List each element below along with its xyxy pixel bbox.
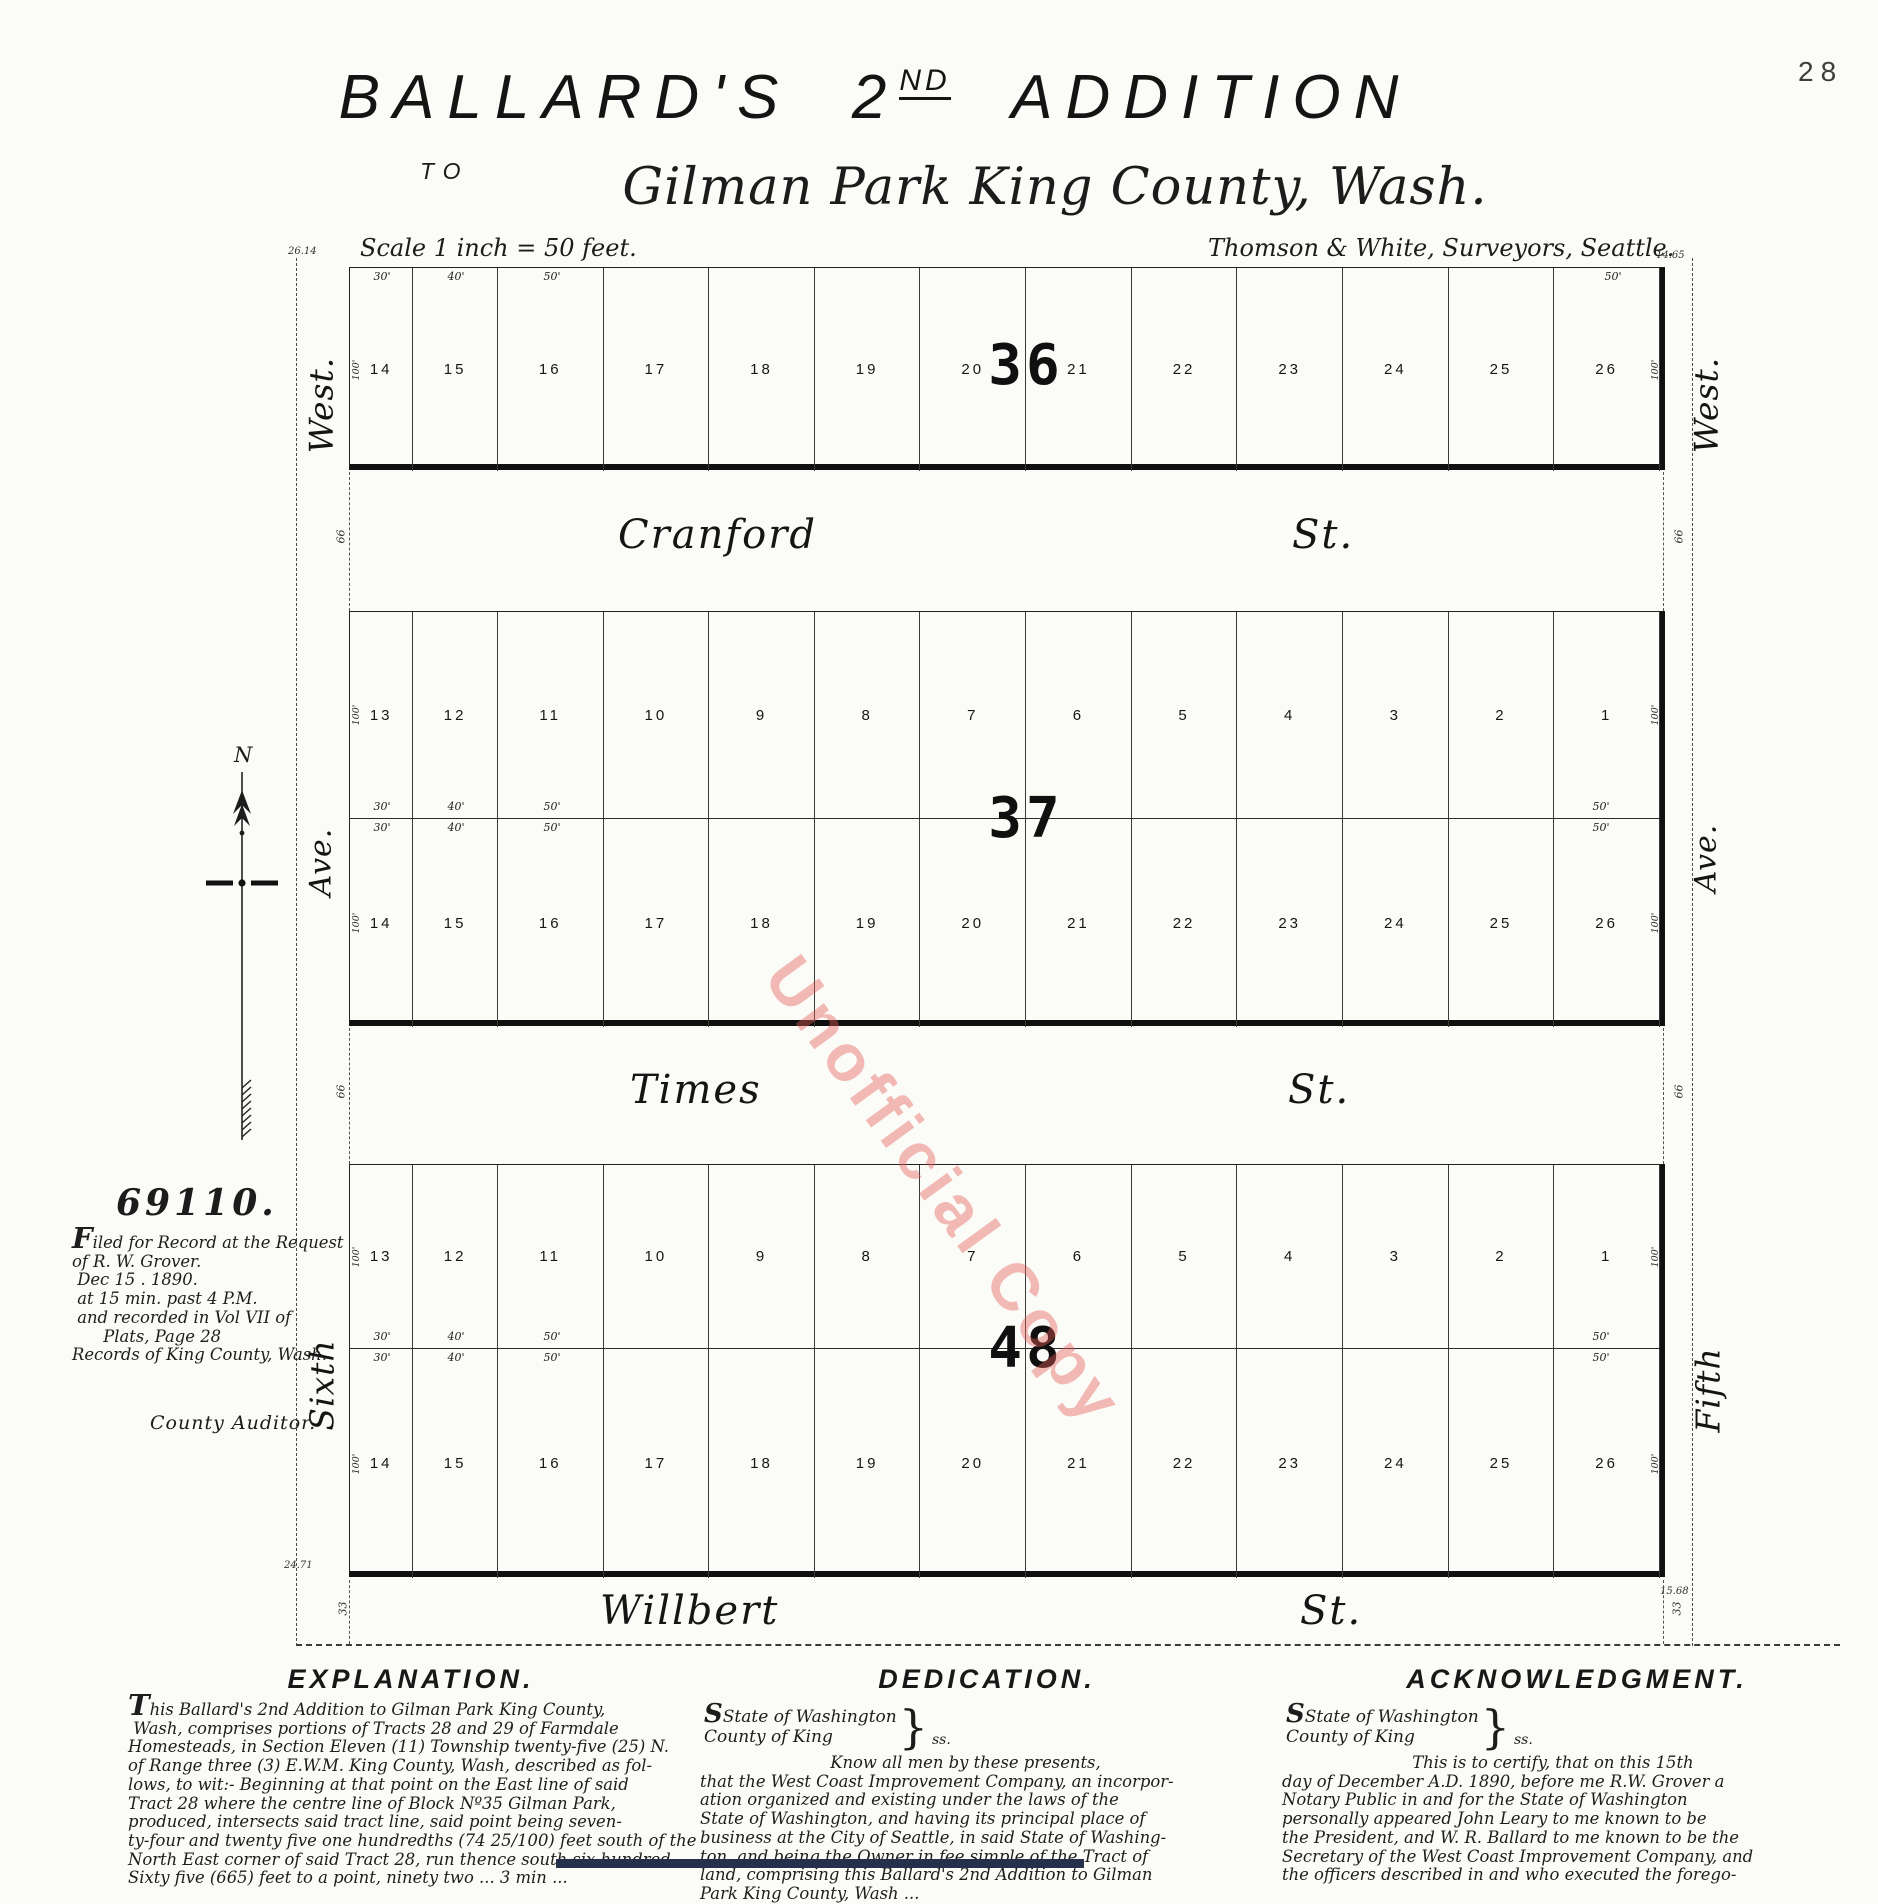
lot-depth-dim: 100': [1650, 705, 1661, 726]
times-width-right: 66: [1673, 1085, 1686, 1099]
lot-number: 11: [539, 1248, 561, 1265]
lot-number: 14: [370, 915, 393, 932]
lot-width-dim: 50': [1592, 1330, 1609, 1343]
lot-number: 10: [645, 707, 668, 724]
text-line: of R. W. Grover.: [72, 1253, 332, 1272]
lot-number: 18: [750, 1455, 773, 1472]
corner-dim-top-left: 26.14: [288, 246, 317, 257]
lot-36-18: 18: [709, 268, 815, 471]
drop-cap: T: [128, 1688, 150, 1722]
lot-number: 1: [1601, 1248, 1612, 1265]
lot-48-3: 3: [1343, 1165, 1449, 1348]
text-line: Plats, Page 28: [72, 1328, 332, 1347]
lot-number: 5: [1178, 1248, 1189, 1265]
cranford-width-right: 66: [1673, 530, 1686, 544]
lot-number: 15: [444, 915, 467, 932]
county-auditor-signature: County Auditor.: [150, 1412, 316, 1434]
cranford-street-edge-left: [349, 472, 350, 611]
lot-number: 22: [1173, 915, 1196, 932]
lot-number: 25: [1490, 915, 1513, 932]
lot-48-25: 25: [1449, 1349, 1555, 1578]
lot-number: 26: [1595, 915, 1618, 932]
lot-37-2: 2: [1449, 612, 1555, 818]
text-line: Park King County, Wash ...: [700, 1885, 1274, 1904]
block-36: 14151617181920212223242526100'100'3630'4…: [349, 267, 1665, 470]
times-street-edge-left: [349, 1028, 350, 1164]
south-boundary-dashed-line: [296, 1644, 1840, 1646]
title-to: TO: [420, 158, 470, 185]
avenue-label-west-right: West.: [1687, 357, 1726, 453]
text-line: personally appeared John Leary to me kno…: [1282, 1810, 1872, 1829]
lot-width-dim: 30': [373, 270, 390, 283]
lot-number: 13: [370, 707, 393, 724]
lot-37-16: 16: [498, 819, 604, 1027]
text-line: and recorded in Vol VII of: [72, 1309, 332, 1328]
venue-ss: ss.: [1514, 1732, 1533, 1748]
lot-36-26: 26: [1554, 268, 1660, 471]
lot-width-dim: 50': [1592, 1351, 1609, 1364]
lot-number: 16: [539, 1455, 562, 1472]
lot-number: 24: [1384, 361, 1407, 378]
lot-number: 7: [967, 707, 978, 724]
lot-number: 6: [1073, 707, 1084, 724]
street-suffix-times: St.: [1288, 1067, 1350, 1113]
lot-48-24: 24: [1343, 1349, 1449, 1578]
lot-number: 8: [861, 1248, 872, 1265]
lot-number: 17: [645, 361, 668, 378]
lot-number: 15: [444, 361, 467, 378]
lot-48-20: 20: [920, 1349, 1026, 1578]
avenue-label-ave-right: Ave.: [1689, 824, 1724, 893]
lot-width-dim: 30': [373, 821, 390, 834]
lot-number: 20: [961, 361, 984, 378]
boundary-dashed-right: [1692, 258, 1693, 1646]
street-name-willbert: Willbert: [600, 1588, 779, 1634]
lot-width-dim: 30': [373, 1330, 390, 1343]
lot-36-22: 22: [1132, 268, 1238, 471]
lot-width-dim: 50': [543, 821, 560, 834]
text-line: ty-four and twenty five one hundredths (…: [128, 1832, 694, 1851]
lot-number: 2: [1495, 707, 1506, 724]
filing-record-note: Filed for Record at the Requestof R. W. …: [72, 1233, 332, 1365]
text-line: Notary Public in and for the State of Wa…: [1282, 1791, 1872, 1810]
lot-number: 17: [645, 1455, 668, 1472]
lot-width-dim: 50': [543, 270, 560, 283]
lot-depth-dim: 100': [351, 1246, 362, 1267]
lot-depth-dim: 100': [351, 913, 362, 934]
lot-37-26: 26: [1554, 819, 1660, 1027]
lot-width-dim: 30': [373, 800, 390, 813]
lot-number: 8: [861, 707, 872, 724]
lot-number: 12: [444, 707, 467, 724]
title-number-suffix: ND: [899, 64, 950, 100]
lot-number: 23: [1278, 1455, 1301, 1472]
lot-number: 23: [1278, 915, 1301, 932]
lot-width-dim: 40': [447, 821, 464, 834]
lot-48-2: 2: [1449, 1165, 1555, 1348]
lot-37-24: 24: [1343, 819, 1449, 1027]
lot-number: 11: [539, 707, 561, 724]
lot-37-10: 10: [604, 612, 710, 818]
lot-number: 19: [856, 361, 879, 378]
lot-37-4: 4: [1237, 612, 1343, 818]
lot-number: 16: [539, 915, 562, 932]
lot-37-1: 1: [1554, 612, 1660, 818]
lot-number: 26: [1595, 1455, 1618, 1472]
lot-width-dim: 50': [1592, 800, 1609, 813]
text-line: of Range three (3) E.W.M. King County, W…: [128, 1757, 694, 1776]
dedication-venue-clause: SState of Washington County of King } ss…: [704, 1700, 1274, 1754]
drop-cap: F: [72, 1221, 93, 1255]
lot-number: 25: [1490, 361, 1513, 378]
lot-number: 9: [756, 1248, 767, 1265]
cranford-street-edge-right: [1663, 472, 1664, 611]
corner-dim-bottom-left: 24.71: [284, 1560, 313, 1571]
lot-48-1: 1: [1554, 1165, 1660, 1348]
text-line: the officers described in and who execut…: [1282, 1866, 1872, 1885]
text-line: This is to certify, that on this 15th: [1282, 1754, 1872, 1773]
lot-37-23: 23: [1237, 819, 1343, 1027]
lot-number: 22: [1173, 1455, 1196, 1472]
lot-37-11: 11: [498, 612, 604, 818]
times-width-left: 66: [335, 1085, 348, 1099]
lot-number: 15: [444, 1455, 467, 1472]
text-line: at 15 min. past 4 P.M.: [72, 1290, 332, 1309]
lot-number: 13: [370, 1248, 393, 1265]
text-line: Know all men by these presents,: [700, 1754, 1274, 1773]
venue-initial: S: [704, 1699, 723, 1729]
title-number: 2: [852, 63, 899, 132]
lot-number: 2: [1495, 1248, 1506, 1265]
north-arrow: N: [198, 738, 288, 1150]
lot-48-26: 26: [1554, 1349, 1660, 1578]
lot-number: 1: [1601, 707, 1612, 724]
avenue-label-fifth-right: Fifth: [1689, 1347, 1728, 1432]
lot-depth-dim: 100': [1650, 359, 1661, 380]
lot-number: 6: [1073, 1248, 1084, 1265]
street-name-times: Times: [630, 1067, 762, 1113]
venue-line2: County of King: [704, 1727, 833, 1747]
venue-line1: State of Washington: [723, 1707, 897, 1727]
block-number-36: 36: [988, 338, 1063, 394]
text-line: Filed for Record at the Request: [72, 1233, 332, 1253]
lot-37-8: 8: [815, 612, 921, 818]
lot-48-17: 17: [604, 1349, 710, 1578]
lot-48-15: 15: [413, 1349, 498, 1578]
plat-title: BALLARD'S 2ND ADDITION: [285, 62, 1465, 133]
lot-48-19: 19: [815, 1349, 921, 1578]
corner-dim-top-right: 14.65: [1656, 250, 1685, 261]
text-line: ation organized and existing under the l…: [700, 1791, 1274, 1810]
lot-number: 25: [1490, 1455, 1513, 1472]
page-number: 28: [1798, 56, 1843, 88]
lot-width-dim: 40': [447, 270, 464, 283]
lot-36-25: 25: [1449, 268, 1555, 471]
lot-number: 19: [856, 1455, 879, 1472]
lot-48-4: 4: [1237, 1165, 1343, 1348]
surveyors-note: Thomson & White, Surveyors, Seattle.: [1208, 234, 1674, 262]
lot-36-16: 16: [498, 268, 604, 471]
lot-number: 17: [645, 915, 668, 932]
lot-depth-dim: 100': [1650, 1246, 1661, 1267]
lot-48-18: 18: [709, 1349, 815, 1578]
lot-number: 23: [1278, 361, 1301, 378]
plat-subtitle: Gilman Park King County, Wash.: [540, 158, 1570, 217]
lot-37-9: 9: [709, 612, 815, 818]
lot-36-24: 24: [1343, 268, 1449, 471]
lot-37-3: 3: [1343, 612, 1449, 818]
lot-number: 24: [1384, 915, 1407, 932]
lot-width-dim: 50': [543, 1330, 560, 1343]
venue-initial: S: [1286, 1699, 1305, 1729]
lot-width-dim: 50': [1592, 821, 1609, 834]
lot-number: 12: [444, 1248, 467, 1265]
willbert-street-edge-right: [1663, 1580, 1664, 1644]
cranford-width-left: 66: [335, 530, 348, 544]
lot-width-dim: 30': [373, 1351, 390, 1364]
lot-number: 26: [1595, 361, 1618, 378]
lot-48-12: 12: [413, 1165, 498, 1348]
text-line: that the West Coast Improvement Company,…: [700, 1773, 1274, 1792]
text-line: the President, and W. R. Ballard to me k…: [1282, 1829, 1872, 1848]
lot-37-22: 22: [1132, 819, 1238, 1027]
boundary-dashed-left: [296, 258, 297, 1646]
lot-48-23: 23: [1237, 1349, 1343, 1578]
lot-number: 9: [756, 707, 767, 724]
lot-36-15: 15: [413, 268, 498, 471]
venue-brace: }: [899, 1700, 928, 1754]
lot-37-15: 15: [413, 819, 498, 1027]
lot-48-9: 9: [709, 1165, 815, 1348]
text-line: Tract 28 where the centre line of Block …: [128, 1795, 694, 1814]
lot-48-16: 16: [498, 1349, 604, 1578]
lot-number: 3: [1390, 1248, 1401, 1265]
text-line: This Ballard's 2nd Addition to Gilman Pa…: [128, 1700, 694, 1720]
lot-number: 22: [1173, 361, 1196, 378]
lot-width-dim: 50': [543, 1351, 560, 1364]
lot-number: 18: [750, 915, 773, 932]
lot-number: 21: [1067, 1455, 1090, 1472]
text-line: State of Washington, and having its prin…: [700, 1810, 1274, 1829]
block-37: 13121110987654321100'100'141516171819202…: [349, 611, 1665, 1026]
street-suffix-willbert: St.: [1300, 1588, 1362, 1634]
text-line: business at the City of Seattle, in said…: [700, 1829, 1274, 1848]
section-explanation: EXPLANATION. This Ballard's 2nd Addition…: [128, 1664, 694, 1888]
lot-number: 18: [750, 361, 773, 378]
lot-number: 21: [1067, 915, 1090, 932]
lot-depth-dim: 100': [1650, 913, 1661, 934]
lot-number: 16: [539, 361, 562, 378]
lot-number: 4: [1284, 1248, 1295, 1265]
lot-width-dim: 40': [447, 1351, 464, 1364]
venue-ss: ss.: [932, 1732, 951, 1748]
venue-line2: County of King: [1286, 1727, 1415, 1747]
acknowledgment-text: This is to certify, that on this 15thday…: [1282, 1754, 1872, 1885]
lot-48-11: 11: [498, 1165, 604, 1348]
text-line: day of December A.D. 1890, before me R.W…: [1282, 1773, 1872, 1792]
lot-number: 5: [1178, 707, 1189, 724]
acknowledgment-venue-clause: SState of Washington County of King } ss…: [1286, 1700, 1872, 1754]
lot-depth-dim: 100': [351, 359, 362, 380]
lot-depth-dim: 100': [1650, 1453, 1661, 1474]
lot-width-dim: 40': [447, 800, 464, 813]
lot-36-19: 19: [815, 268, 921, 471]
lot-number: 20: [961, 915, 984, 932]
section-title-acknowledgment: ACKNOWLEDGMENT.: [1282, 1664, 1872, 1695]
lot-depth-dim: 100': [351, 1453, 362, 1474]
lot-number: 14: [370, 361, 393, 378]
lot-number: 3: [1390, 707, 1401, 724]
text-line: Homesteads, in Section Eleven (11) Towns…: [128, 1738, 694, 1757]
street-name-cranford: Cranford: [618, 512, 817, 558]
lot-number: 24: [1384, 1455, 1407, 1472]
lot-width-dim: 50': [543, 800, 560, 813]
lot-36-17: 17: [604, 268, 710, 471]
lot-row: 14151617181920212223242526100'100': [350, 1349, 1660, 1578]
text-line: Dec 15 . 1890.: [72, 1271, 332, 1290]
title-word1: BALLARD'S: [339, 63, 792, 132]
text-line: Secretary of the West Coast Improvement …: [1282, 1848, 1872, 1867]
section-title-explanation: EXPLANATION.: [128, 1664, 694, 1695]
text-line: Wash, comprises portions of Tracts 28 an…: [128, 1720, 694, 1739]
avenue-label-ave-left: Ave.: [304, 828, 339, 897]
lot-37-25: 25: [1449, 819, 1555, 1027]
text-line: lows, to wit:- Beginning at that point o…: [128, 1776, 694, 1795]
dedication-text: Know all men by these presents,that the …: [700, 1754, 1274, 1904]
lot-48-10: 10: [604, 1165, 710, 1348]
lot-number: 4: [1284, 707, 1295, 724]
lot-48-22: 22: [1132, 1349, 1238, 1578]
lot-depth-dim: 100': [351, 705, 362, 726]
north-letter: N: [233, 743, 253, 767]
text-line: produced, intersects said tract line, sa…: [128, 1813, 694, 1832]
section-title-dedication: DEDICATION.: [700, 1664, 1274, 1695]
willbert-width-right: 33: [1671, 1602, 1684, 1616]
willbert-width-left: 33: [337, 1602, 350, 1616]
block-number-37: 37: [988, 791, 1063, 847]
lot-number: 10: [645, 1248, 668, 1265]
lot-37-17: 17: [604, 819, 710, 1027]
text-line: Records of King County, Wash.: [72, 1346, 332, 1365]
lot-37-12: 12: [413, 612, 498, 818]
text-line: Sixty five (665) feet to a point, ninety…: [128, 1869, 694, 1888]
lot-number: 14: [370, 1455, 393, 1472]
text-line: land, comprising this Ballard's 2nd Addi…: [700, 1866, 1274, 1885]
venue-brace: }: [1481, 1700, 1510, 1754]
lot-number: 20: [961, 1455, 984, 1472]
corner-dim-bottom-right: 15.68: [1660, 1586, 1689, 1597]
section-acknowledgment: ACKNOWLEDGMENT. SState of Washington Cou…: [1282, 1664, 1872, 1885]
street-suffix-cranford: St.: [1292, 512, 1354, 558]
scale-note: Scale 1 inch = 50 feet.: [360, 234, 637, 262]
lot-37-5: 5: [1132, 612, 1238, 818]
lot-36-23: 23: [1237, 268, 1343, 471]
lot-48-5: 5: [1132, 1165, 1238, 1348]
venue-line1: State of Washington: [1305, 1707, 1479, 1727]
lot-width-dim: 50': [1604, 270, 1621, 283]
scan-artifact-bar: [556, 1859, 1084, 1868]
lot-width-dim: 40': [447, 1330, 464, 1343]
lot-number: 19: [856, 915, 879, 932]
title-word2: ADDITION: [1011, 63, 1411, 132]
avenue-label-west-left: West.: [302, 357, 341, 453]
times-street-edge-right: [1663, 1028, 1664, 1164]
lot-number: 21: [1067, 361, 1090, 378]
filing-number: 69110.: [116, 1182, 278, 1224]
